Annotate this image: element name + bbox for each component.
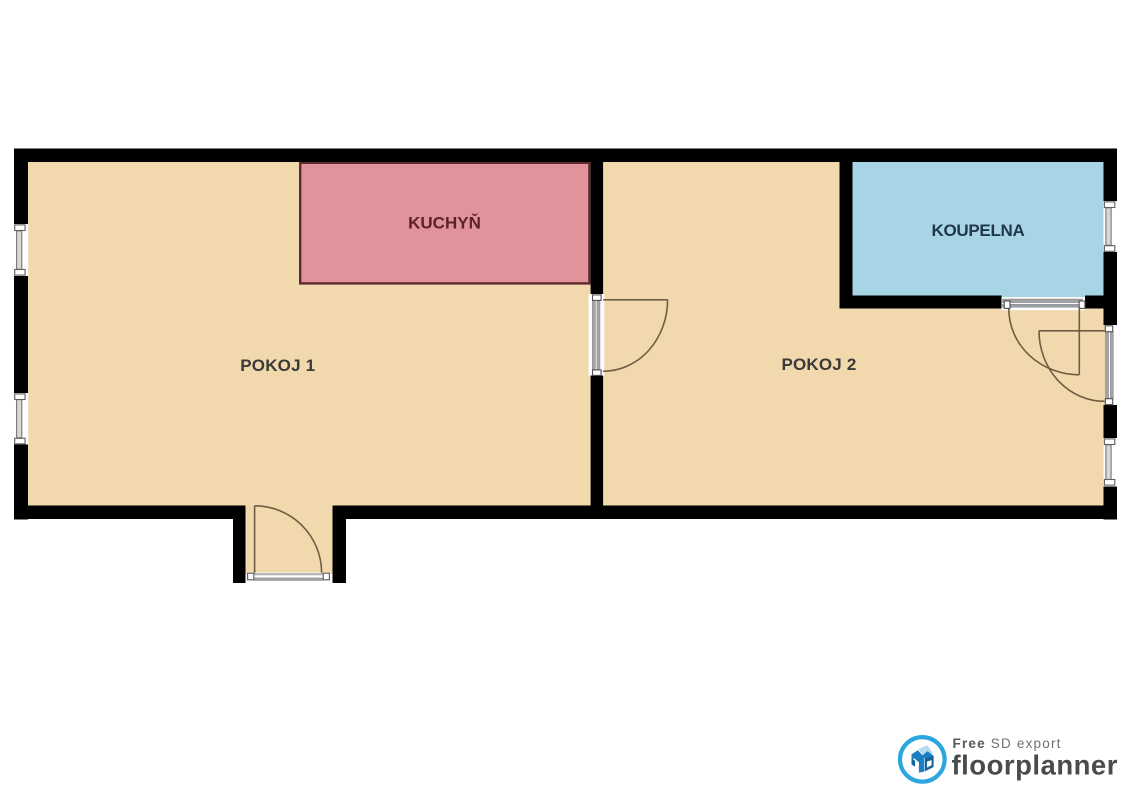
svg-text:KOUPELNA: KOUPELNA xyxy=(932,221,1025,240)
svg-text:POKOJ 1: POKOJ 1 xyxy=(240,356,315,375)
svg-text:POKOJ 2: POKOJ 2 xyxy=(781,355,856,374)
svg-text:KUCHYŇ: KUCHYŇ xyxy=(408,214,481,233)
svg-text:floorplanner: floorplanner xyxy=(952,750,1118,781)
